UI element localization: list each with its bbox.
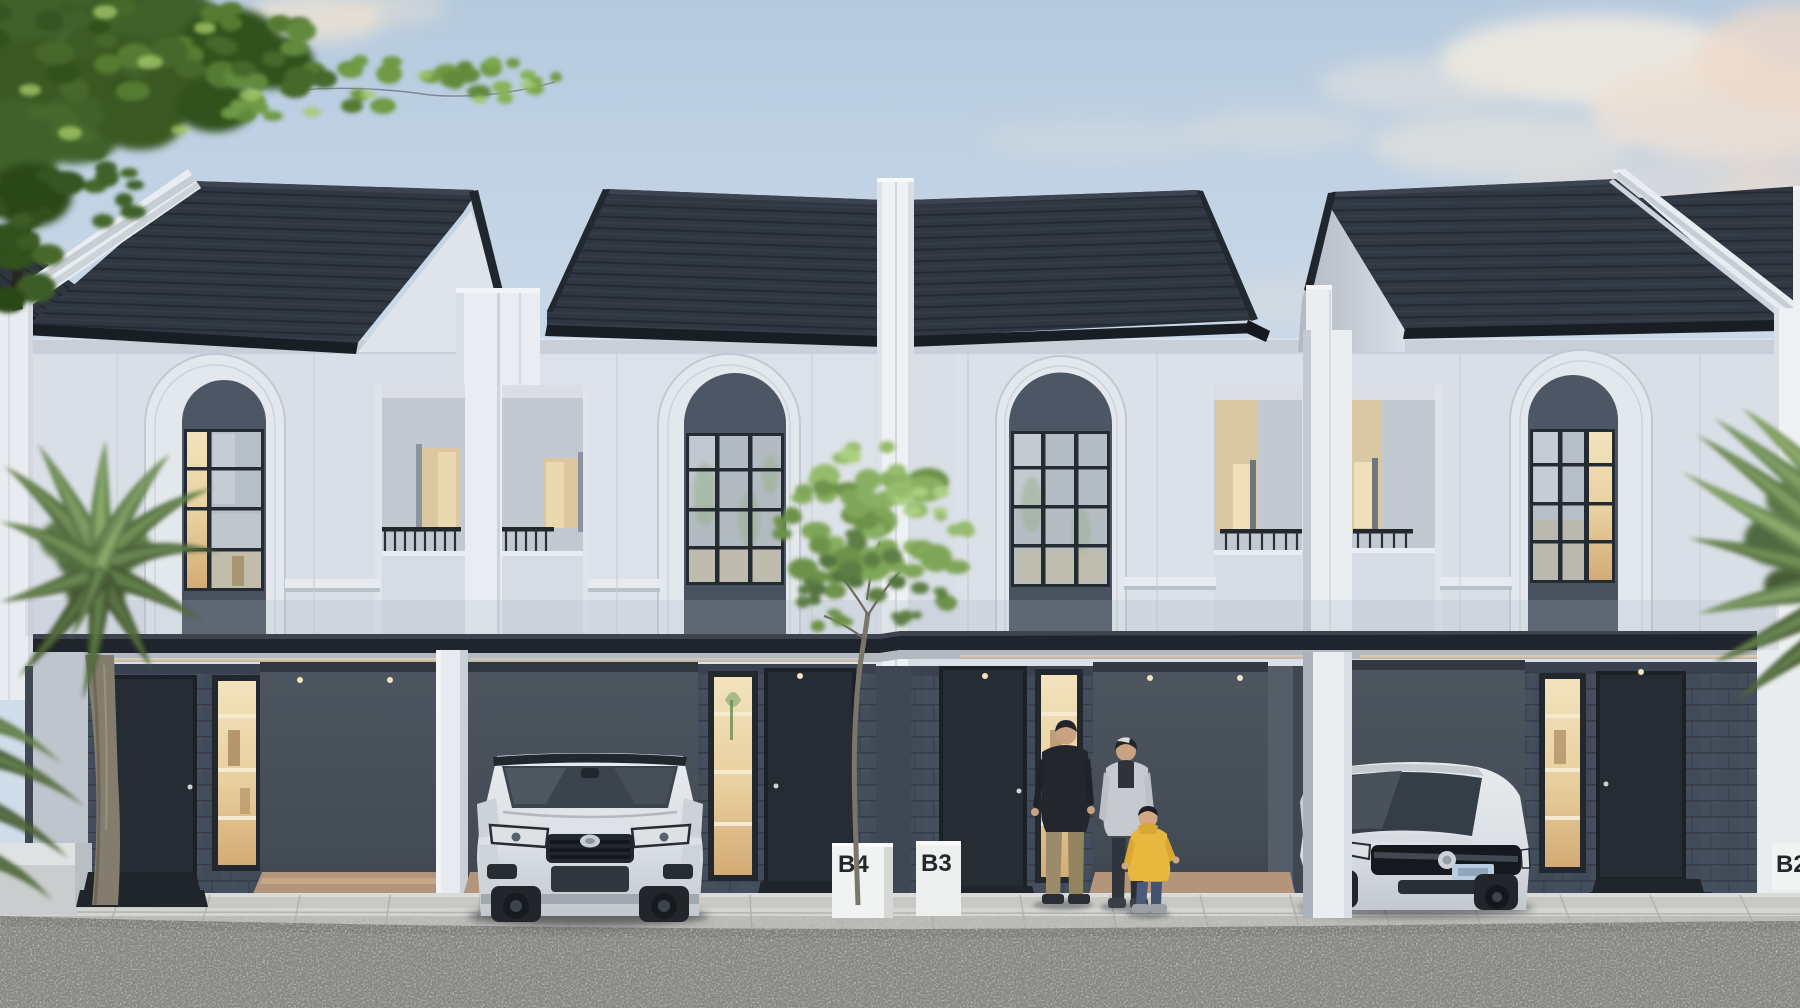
svg-text:B2: B2 xyxy=(1776,851,1800,878)
svg-text:B3: B3 xyxy=(921,850,952,877)
svg-text:B4: B4 xyxy=(838,851,869,878)
